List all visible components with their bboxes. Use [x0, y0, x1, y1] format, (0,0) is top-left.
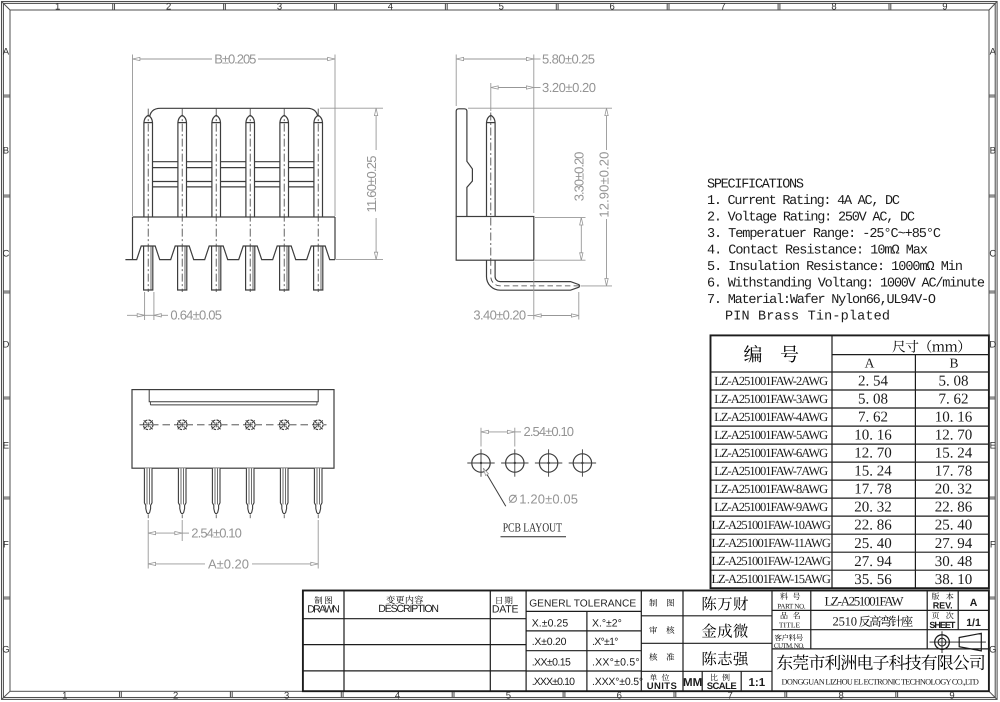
- svg-text:REV.: REV.: [933, 601, 953, 611]
- svg-text:22. 86: 22. 86: [935, 500, 973, 516]
- svg-text:A: A: [865, 356, 875, 371]
- svg-text:35. 56: 35. 56: [854, 572, 892, 588]
- svg-text:5. 08: 5. 08: [858, 392, 888, 408]
- svg-text:7. Material:Wafer Nylon66,UL94: 7. Material:Wafer Nylon66,UL94V-O: [707, 293, 936, 308]
- svg-text:LZ-A251001FAW-7AWG: LZ-A251001FAW-7AWG: [714, 464, 828, 478]
- svg-text:SPECIFICATIONS: SPECIFICATIONS: [707, 178, 804, 193]
- svg-text:B: B: [990, 145, 996, 156]
- svg-text:.XXX±0.10: .XXX±0.10: [532, 676, 575, 688]
- svg-text:X.±0.25: X.±0.25: [532, 618, 569, 630]
- svg-text:30. 48: 30. 48: [935, 554, 973, 570]
- svg-text:.X°±1°: .X°±1°: [592, 636, 618, 648]
- svg-text:2: 2: [173, 690, 178, 701]
- svg-text:LZ-A251001FAW-4AWG: LZ-A251001FAW-4AWG: [714, 410, 828, 424]
- svg-text:B: B: [3, 145, 9, 156]
- svg-text:3.30±0.20: 3.30±0.20: [572, 152, 587, 202]
- svg-text:MM: MM: [683, 677, 702, 689]
- svg-text:LZ-A251001FAW-3AWG: LZ-A251001FAW-3AWG: [714, 392, 828, 406]
- svg-text:LZ-A251001FAW-2AWG: LZ-A251001FAW-2AWG: [714, 374, 828, 388]
- svg-text:17. 78: 17. 78: [935, 464, 973, 480]
- svg-text:1: 1: [62, 690, 67, 701]
- svg-text:LZ-A251001FAW: LZ-A251001FAW: [825, 594, 905, 609]
- svg-text:7: 7: [720, 2, 725, 13]
- svg-text:C: C: [2, 248, 9, 259]
- svg-text:B±0.205: B±0.205: [214, 52, 256, 67]
- svg-text:2.54±0.10: 2.54±0.10: [191, 526, 242, 541]
- svg-text:G: G: [989, 644, 996, 655]
- svg-text:4: 4: [388, 2, 393, 13]
- svg-text:C: C: [989, 248, 996, 259]
- svg-text:.XX±0.15: .XX±0.15: [532, 657, 571, 669]
- svg-text:A: A: [3, 46, 10, 57]
- svg-text:8: 8: [831, 2, 836, 13]
- svg-text:2. Voltage Rating: 250V AC, DC: 2. Voltage Rating: 250V AC, DC: [707, 211, 915, 226]
- svg-text:22. 86: 22. 86: [854, 518, 892, 534]
- svg-text:2: 2: [166, 2, 171, 13]
- svg-text:SCALE: SCALE: [707, 681, 737, 692]
- svg-text:D: D: [2, 339, 9, 350]
- svg-text:A±0.20: A±0.20: [208, 556, 249, 571]
- svg-text:LZ-A251001FAW-8AWG: LZ-A251001FAW-8AWG: [714, 482, 828, 496]
- svg-text:25. 40: 25. 40: [935, 518, 973, 534]
- svg-text:PIN Brass Tin-plated: PIN Brass Tin-plated: [725, 310, 890, 325]
- svg-text:27. 94: 27. 94: [854, 554, 892, 570]
- svg-text:E: E: [990, 440, 996, 451]
- svg-text:.XXX°±0.5°: .XXX°±0.5°: [592, 676, 643, 688]
- svg-text:X.°±2°: X.°±2°: [592, 618, 622, 630]
- svg-text:20. 32: 20. 32: [854, 500, 892, 516]
- svg-text:3.40±0.20: 3.40±0.20: [473, 308, 526, 323]
- svg-text:LZ-A251001FAW-15AWG: LZ-A251001FAW-15AWG: [711, 572, 831, 586]
- svg-text:LZ-A251001FAW-10AWG: LZ-A251001FAW-10AWG: [711, 518, 831, 532]
- svg-text:1: 1: [55, 2, 60, 13]
- svg-text:11.60±0.25: 11.60±0.25: [364, 156, 379, 213]
- svg-text:0.64±0.05: 0.64±0.05: [170, 308, 222, 323]
- svg-text:10. 16: 10. 16: [854, 428, 892, 444]
- svg-text:PCB LAYOUT: PCB LAYOUT: [503, 521, 563, 535]
- svg-text:3: 3: [284, 690, 289, 701]
- svg-text:E: E: [3, 440, 9, 451]
- svg-text:12. 70: 12. 70: [935, 428, 973, 444]
- svg-text:3. Temperatuer Range: -25°C~+8: 3. Temperatuer Range: -25°C~+85°C: [707, 227, 941, 242]
- svg-text:LZ-A251001FAW-9AWG: LZ-A251001FAW-9AWG: [714, 500, 828, 514]
- svg-text:A: A: [990, 46, 997, 57]
- svg-text:5: 5: [499, 2, 504, 13]
- svg-text:LZ-A251001FAW-11AWG: LZ-A251001FAW-11AWG: [711, 536, 831, 550]
- svg-text:G: G: [2, 644, 9, 655]
- svg-text:6. Withstanding Voltang: 1000V: 6. Withstanding Voltang: 1000V AC/minute: [707, 277, 985, 292]
- svg-text:TITLE: TITLE: [779, 620, 801, 629]
- svg-text:.XX°±0.5°: .XX°±0.5°: [592, 657, 640, 669]
- svg-text:9: 9: [942, 2, 947, 13]
- svg-text:F: F: [990, 539, 996, 550]
- svg-text:SHEET: SHEET: [929, 620, 956, 630]
- svg-text:3: 3: [277, 2, 282, 13]
- svg-text:6: 6: [610, 2, 615, 13]
- svg-text:1. Current Rating: 4A AC, DC: 1. Current Rating: 4A AC, DC: [707, 194, 900, 209]
- svg-text:UNITS: UNITS: [647, 681, 677, 692]
- svg-text:LZ-A251001FAW-12AWG: LZ-A251001FAW-12AWG: [711, 554, 831, 568]
- svg-text:25. 40: 25. 40: [854, 536, 892, 552]
- svg-text:3.20±0.20: 3.20±0.20: [542, 80, 596, 95]
- svg-text:1:1: 1:1: [748, 677, 765, 689]
- svg-text:PART NO.: PART NO.: [777, 602, 805, 610]
- svg-text:2510: 2510: [833, 614, 858, 628]
- svg-text:4. Contact Resistance: 10mΩ Ma: 4. Contact Resistance: 10mΩ Max: [707, 244, 928, 259]
- svg-text:15. 24: 15. 24: [854, 464, 892, 480]
- svg-text:5.80±0.25: 5.80±0.25: [542, 52, 595, 67]
- svg-text:D: D: [989, 339, 996, 350]
- svg-text:2.54±0.10: 2.54±0.10: [524, 424, 575, 439]
- svg-text:5. 08: 5. 08: [939, 374, 969, 390]
- svg-text:15. 24: 15. 24: [935, 446, 973, 462]
- svg-text:1/1: 1/1: [966, 617, 981, 629]
- svg-text:7. 62: 7. 62: [858, 410, 888, 426]
- svg-text:B: B: [949, 356, 958, 371]
- svg-text:DESCRIPTION: DESCRIPTION: [378, 603, 439, 615]
- svg-text:DONGGUAN LIZHOU EL ECTRONIC TE: DONGGUAN LIZHOU EL ECTRONIC TECHNOLOGY C…: [782, 677, 979, 686]
- svg-text:LZ-A251001FAW-5AWG: LZ-A251001FAW-5AWG: [714, 428, 828, 442]
- svg-text:F: F: [3, 539, 9, 550]
- svg-text:DATE: DATE: [492, 603, 519, 615]
- svg-text:12.90±0.20: 12.90±0.20: [597, 152, 612, 218]
- svg-text:10. 16: 10. 16: [935, 410, 973, 426]
- svg-text:2. 54: 2. 54: [858, 374, 889, 390]
- svg-text:1.20±0.05: 1.20±0.05: [519, 492, 578, 507]
- svg-text:DRAWN: DRAWN: [307, 603, 340, 615]
- svg-text:LZ-A251001FAW-6AWG: LZ-A251001FAW-6AWG: [714, 446, 828, 460]
- svg-text:A: A: [970, 597, 978, 609]
- svg-text:GENERL TOLERANCE: GENERL TOLERANCE: [529, 598, 636, 609]
- svg-text:CUTM. NO.: CUTM. NO.: [774, 642, 805, 650]
- svg-text:17. 78: 17. 78: [854, 482, 892, 498]
- svg-text:12. 70: 12. 70: [854, 446, 892, 462]
- svg-text:5. Insulation Resistance: 1000: 5. Insulation Resistance: 1000mΩ Min: [707, 260, 963, 275]
- svg-text:20. 32: 20. 32: [935, 482, 973, 498]
- svg-text:7. 62: 7. 62: [939, 392, 969, 408]
- svg-text:.X±0.20: .X±0.20: [532, 636, 567, 648]
- svg-text:38. 10: 38. 10: [935, 572, 973, 588]
- svg-text:27. 94: 27. 94: [935, 536, 973, 552]
